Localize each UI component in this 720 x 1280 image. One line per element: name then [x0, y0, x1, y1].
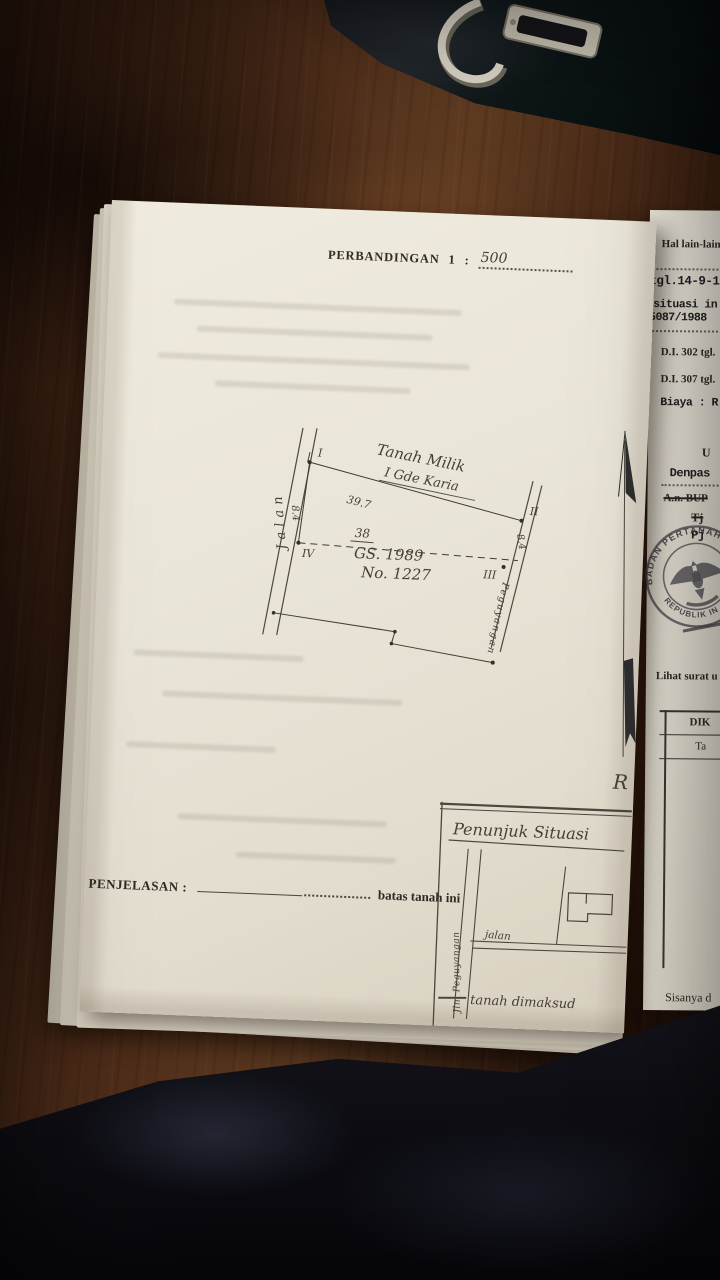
corner-label-3: III	[482, 568, 497, 582]
u-fragment: U	[702, 445, 711, 460]
hal-lain-label: Hal lain-lain :	[662, 238, 720, 251]
clasp-hook	[442, 2, 500, 79]
scale-dotted-line: 500	[478, 249, 573, 273]
tgl-line: tgl.14-9-19	[649, 274, 720, 289]
reference-line-2: No. 1227	[360, 563, 432, 584]
penjelasan-dotted	[304, 894, 370, 899]
table-header-ta: Ta	[695, 740, 706, 752]
table-header-dik: DIK	[689, 716, 710, 728]
corner-label-2: II	[529, 505, 540, 518]
dotted-line	[649, 268, 720, 271]
inset-building-outline	[567, 893, 612, 923]
scale-value-handwritten: 500	[478, 250, 507, 267]
di-307-label: D.I. 307 tgl.	[660, 373, 715, 385]
inset-vertical-road-label: Jln. Peguyangan	[452, 931, 463, 1014]
table-border	[660, 710, 720, 712]
right-edge-script: Peguyangan	[484, 580, 511, 655]
bleed-through-mark	[126, 741, 276, 753]
inset-caption: tanah dimaksud	[470, 993, 576, 1012]
bleed-through-mark	[236, 851, 396, 863]
situasi-line: situasi in	[653, 298, 717, 312]
scale-ratio: 1	[448, 253, 456, 268]
dotted-line	[662, 484, 720, 487]
bleed-through-mark	[158, 352, 470, 371]
inset-title-underline	[448, 840, 624, 851]
inset-caption-arrow	[438, 997, 466, 999]
scale-colon: :	[464, 253, 470, 268]
owner-caption: Tanah Milik I Gde Karia	[371, 440, 483, 500]
penjelasan-label: PENJELASAN :	[88, 876, 187, 896]
dimension-left: 8.4	[289, 505, 301, 522]
dimension-top: 39.7	[345, 493, 372, 512]
bleed-through-mark	[197, 326, 433, 341]
document-photo: Hal lain-lain : tgl.14-9-19 situasi in 5…	[0, 0, 720, 1280]
land-plot-sketch: Jalan I II III	[241, 420, 583, 679]
table-border-vertical	[662, 710, 666, 968]
survey-sketch-page: PERBANDINGAN 1 : 500 Jalan	[79, 200, 656, 1033]
inset-title: Penunjuk Situasi	[452, 819, 590, 843]
corner-label-1: I	[317, 446, 324, 459]
location-inset-box: Penunjuk Situasi Jln. Peguyangan jalan t…	[431, 800, 632, 1034]
bleed-through-mark	[215, 380, 411, 394]
north-letter: R	[612, 770, 629, 795]
struck-an-bup: A.n. BUP	[663, 492, 707, 504]
denpasar-label: Denpas	[670, 466, 710, 480]
inset-horizontal-road-label: jalan	[482, 928, 511, 943]
lihat-surat-label: Lihat surat u	[656, 670, 718, 683]
di-302-label: D.I. 302 tgl.	[661, 346, 716, 358]
penjelasan-row: PENJELASAN : batas tanah ini	[88, 876, 460, 907]
dimension-underline	[350, 541, 373, 543]
dimension-middle: 38	[355, 526, 371, 541]
corner-label-4: IV	[301, 547, 316, 561]
road-label: Jalan	[270, 491, 290, 553]
biaya-label: Biaya : R	[660, 396, 718, 410]
table-border	[659, 734, 720, 736]
clasp-hook-shadow	[444, 5, 502, 82]
nomor-line: 5087/1988	[649, 311, 707, 325]
scale-label: PERBANDINGAN	[328, 248, 440, 267]
penjelasan-rule	[197, 891, 302, 896]
reference-line-1: GS. 1989	[354, 544, 425, 565]
bleed-through-mark	[162, 690, 402, 706]
bleed-through-mark	[177, 813, 387, 827]
scale-line: PERBANDINGAN 1 : 500	[328, 243, 573, 273]
right-document-page: Hal lain-lain : tgl.14-9-19 situasi in 5…	[643, 210, 720, 1011]
dotted-line	[649, 330, 720, 333]
bleed-through-mark	[174, 299, 462, 317]
clasp-buckle	[502, 4, 602, 58]
table-border	[659, 758, 720, 760]
sisanya-label: Sisanya d	[665, 990, 711, 1005]
